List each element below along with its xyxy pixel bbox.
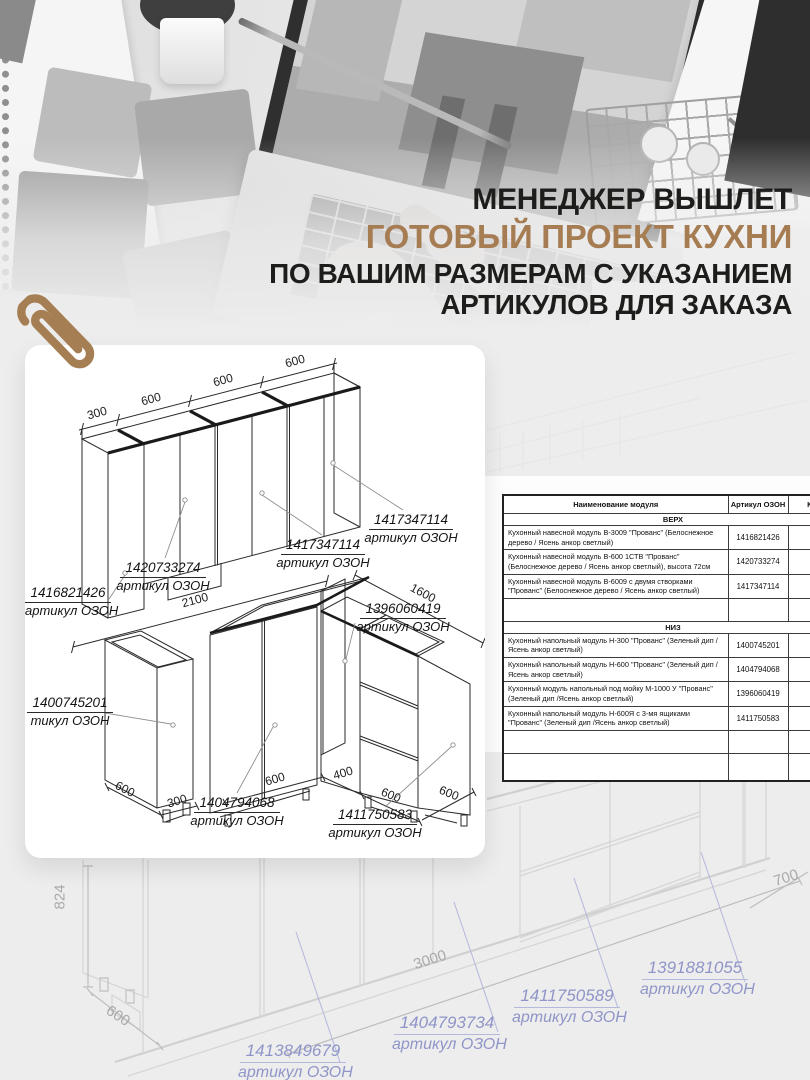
article-caption: артикул ОЗОН <box>238 1063 348 1080</box>
module-name: Кухонный навесной модуль В-6009 с двумя … <box>503 574 728 598</box>
col-header-qty: Кол- <box>788 495 810 514</box>
module-qty <box>788 526 810 550</box>
article-caption: артикул ОЗОН <box>275 555 371 571</box>
module-article: 1400745201 <box>728 633 788 657</box>
headline-line-1: МЕНЕДЖЕР ВЫШЛЕТ <box>269 183 792 216</box>
module-article: 1420733274 <box>728 550 788 574</box>
kitchen-blueprint-card: 300 600 600 600 2100 1600 600 300 600 40… <box>25 345 485 858</box>
article-number: 1420733274 <box>120 560 205 578</box>
module-article: 1411750583 <box>728 706 788 730</box>
module-name: Кухонный модуль напольный под мойку М-10… <box>503 682 728 706</box>
module-qty <box>788 706 810 730</box>
col-header-article: Артикул ОЗОН <box>728 495 788 514</box>
table-row: Кухонный напольный модуль Н-600Я с 3-мя … <box>503 706 810 730</box>
article-caption: артикул ОЗОН <box>187 813 287 829</box>
article-label: 1404794068 артикул ОЗОН <box>187 793 287 829</box>
bg-article-label: 1404793734 артикул ОЗОН <box>392 1012 502 1055</box>
section-row-top: ВЕРХ <box>503 514 810 526</box>
article-number: 1417347114 <box>281 537 365 555</box>
module-qty <box>788 574 810 598</box>
article-caption: артикул ОЗОН <box>640 980 750 1000</box>
article-label: 1400745201 тикул ОЗОН <box>27 693 113 729</box>
article-label: 1417347114 артикул ОЗОН <box>275 535 371 571</box>
table-row: Кухонный модуль напольный под мойку М-10… <box>503 682 810 706</box>
article-label: 1420733274 артикул ОЗОН <box>115 558 211 594</box>
article-caption: артикул ОЗОН <box>512 1008 622 1028</box>
article-caption: артикул ОЗОН <box>363 530 459 546</box>
article-number: 1411750583 <box>333 807 417 825</box>
empty-row <box>503 598 810 621</box>
bg-article-label: 1411750589 артикул ОЗОН <box>512 985 622 1028</box>
section-title: НИЗ <box>503 621 810 633</box>
article-number: 1416821426 <box>25 585 110 603</box>
promo-page: { "headline": { "line1": "МЕНЕДЖЕР ВЫШЛЕ… <box>0 0 810 1080</box>
empty-row <box>503 730 810 753</box>
table-row: Кухонный напольный модуль Н-300 "Прованс… <box>503 633 810 657</box>
article-label: 1417347114 артикул ОЗОН <box>363 510 459 546</box>
faded-wall-cabinet-lines <box>487 352 808 473</box>
section-row-bottom: НИЗ <box>503 621 810 633</box>
module-qty <box>788 633 810 657</box>
module-qty <box>788 658 810 682</box>
table-row: Кухонный навесной модуль В-600 1СТВ "Про… <box>503 550 810 574</box>
module-name: Кухонный напольный модуль Н-600 "Прованс… <box>503 658 728 682</box>
article-label: 1411750583 артикул ОЗОН <box>323 805 427 841</box>
article-number: 1400745201 <box>27 695 112 713</box>
article-label: 1396060419 артикул ОЗОН <box>347 599 459 635</box>
module-qty <box>788 550 810 574</box>
article-caption: тикул ОЗОН <box>27 713 113 729</box>
article-number: 1396060419 <box>360 601 445 619</box>
bg-dim-height: 824 <box>52 884 69 909</box>
table-row: Кухонный навесной модуль В-6009 с двумя … <box>503 574 810 598</box>
article-label: 1416821426 артикул ОЗОН <box>25 583 111 619</box>
table-row: Кухонный напольный модуль Н-600 "Прованс… <box>503 658 810 682</box>
spec-table: Наименование модуля Артикул ОЗОН Кол- ВЕ… <box>502 494 810 782</box>
article-number: 1411750589 <box>514 985 619 1008</box>
article-number: 1391881055 <box>642 957 749 980</box>
headline-line-2: ГОТОВЫЙ ПРОЕКТ КУХНИ <box>269 219 792 255</box>
module-article: 1404794068 <box>728 658 788 682</box>
article-caption: артикул ОЗОН <box>323 825 427 841</box>
article-caption: артикул ОЗОН <box>392 1035 502 1055</box>
bg-article-label: 1413849679 артикул ОЗОН <box>238 1040 348 1080</box>
module-name: Кухонный напольный модуль Н-300 "Прованс… <box>503 633 728 657</box>
article-number: 1417347114 <box>369 512 453 530</box>
headline-line-4: АРТИКУЛОВ ДЛЯ ЗАКАЗА <box>269 290 792 321</box>
module-name: Кухонный напольный модуль Н-600Я с 3-мя … <box>503 706 728 730</box>
module-article: 1396060419 <box>728 682 788 706</box>
article-number: 1404793734 <box>394 1012 501 1035</box>
col-header-name: Наименование модуля <box>503 495 728 514</box>
headline-line-3: ПО ВАШИМ РАЗМЕРАМ С УКАЗАНИЕМ <box>269 259 792 290</box>
article-number: 1413849679 <box>240 1040 347 1063</box>
bg-article-label: 1391881055 артикул ОЗОН <box>640 957 750 1000</box>
module-article: 1416821426 <box>728 526 788 550</box>
article-caption: артикул ОЗОН <box>115 578 211 594</box>
module-name: Кухонный навесной модуль В-600 1СТВ "Про… <box>503 550 728 574</box>
article-number: 1404794068 <box>194 795 279 813</box>
article-caption: артикул ОЗОН <box>347 619 459 635</box>
table-header-row: Наименование модуля Артикул ОЗОН Кол- <box>503 495 810 514</box>
headline: МЕНЕДЖЕР ВЫШЛЕТ ГОТОВЫЙ ПРОЕКТ КУХНИ ПО … <box>269 183 792 321</box>
module-article: 1417347114 <box>728 574 788 598</box>
module-name: Кухонный навесной модуль В-3009 "Прованс… <box>503 526 728 550</box>
section-title: ВЕРХ <box>503 514 810 526</box>
module-qty <box>788 682 810 706</box>
empty-row <box>503 753 810 781</box>
article-caption: артикул ОЗОН <box>25 603 111 619</box>
table-row: Кухонный навесной модуль В-3009 "Прованс… <box>503 526 810 550</box>
